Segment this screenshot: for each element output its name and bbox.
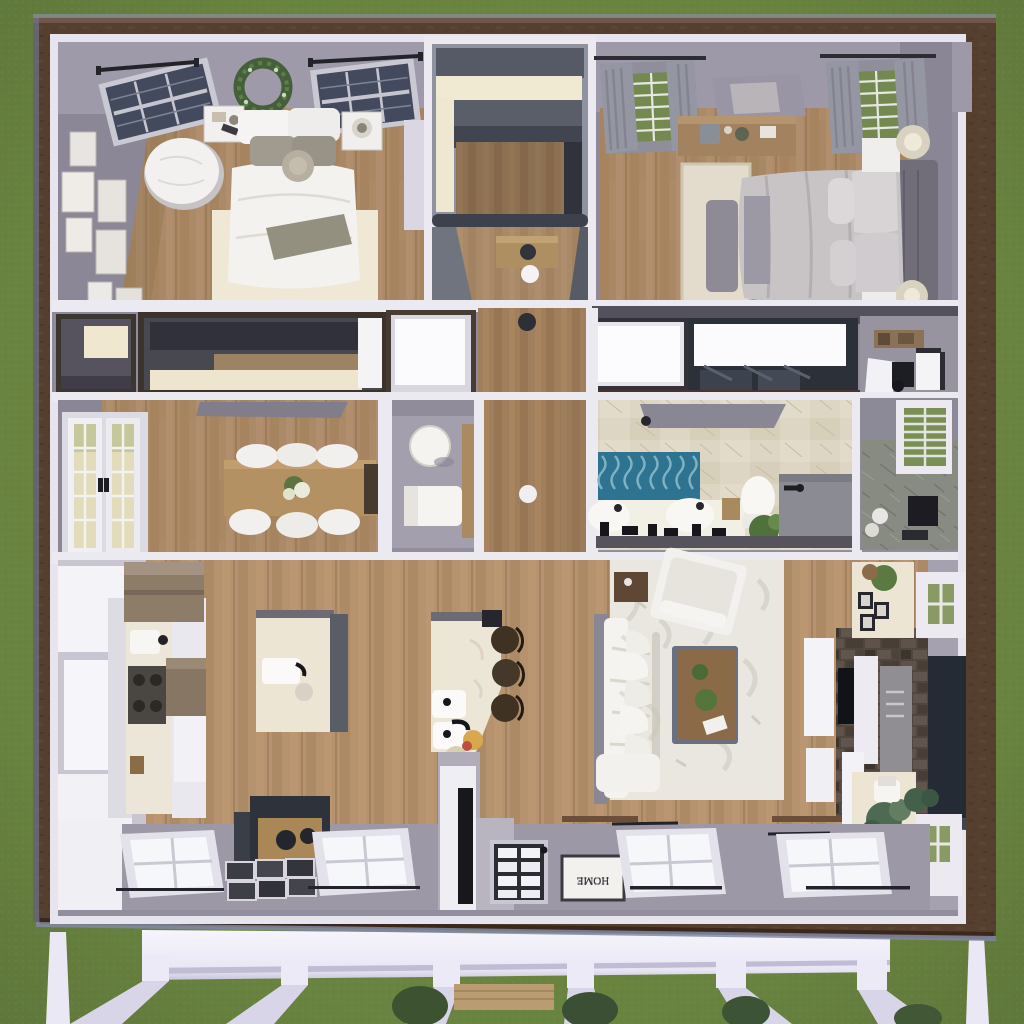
svg-text:HOME: HOME xyxy=(577,875,610,887)
